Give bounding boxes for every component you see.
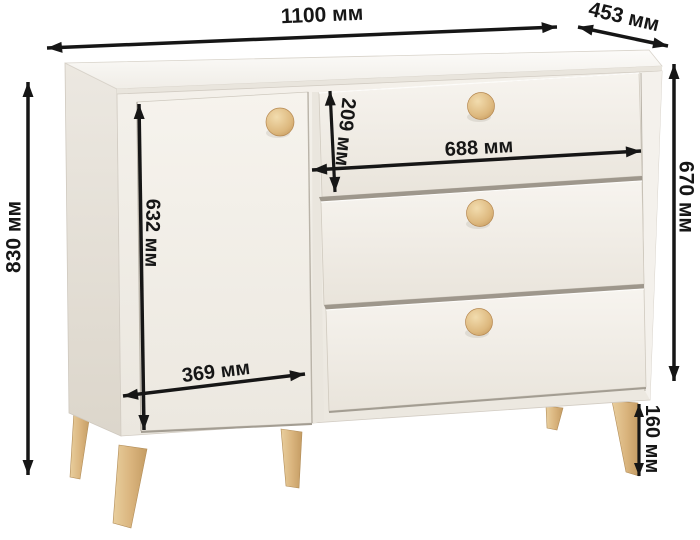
diagram-canvas: 1100 мм 453 мм 830 мм 670 мм 160 мм 632 … — [0, 0, 700, 540]
knob-door — [266, 108, 294, 138]
dim-door-height-label: 632 мм — [140, 199, 163, 268]
leg-back-right — [546, 406, 563, 430]
dim-drawer-width-label: 688 мм — [444, 135, 514, 161]
dim-overall-height-arrow — [23, 82, 34, 475]
cabinet-left-side — [65, 63, 121, 436]
knob-drawer-1 — [467, 93, 495, 123]
knob-drawer-2 — [466, 200, 494, 230]
drawer-1 — [319, 73, 642, 197]
cabinet-illustration — [65, 50, 662, 528]
furniture-dimension-diagram: 1100 мм 453 мм 830 мм 670 мм 160 мм 632 … — [0, 0, 700, 540]
dim-overall-width-label: 1100 мм — [280, 2, 363, 29]
leg-front-left — [113, 445, 147, 528]
leg-front-middle — [281, 429, 302, 488]
dim-body-height-label: 670 мм — [675, 161, 698, 233]
knob-drawer-3 — [465, 309, 493, 339]
dim-leg-height-label: 160 мм — [641, 405, 663, 474]
dim-overall-height-label: 830 мм — [3, 201, 26, 273]
